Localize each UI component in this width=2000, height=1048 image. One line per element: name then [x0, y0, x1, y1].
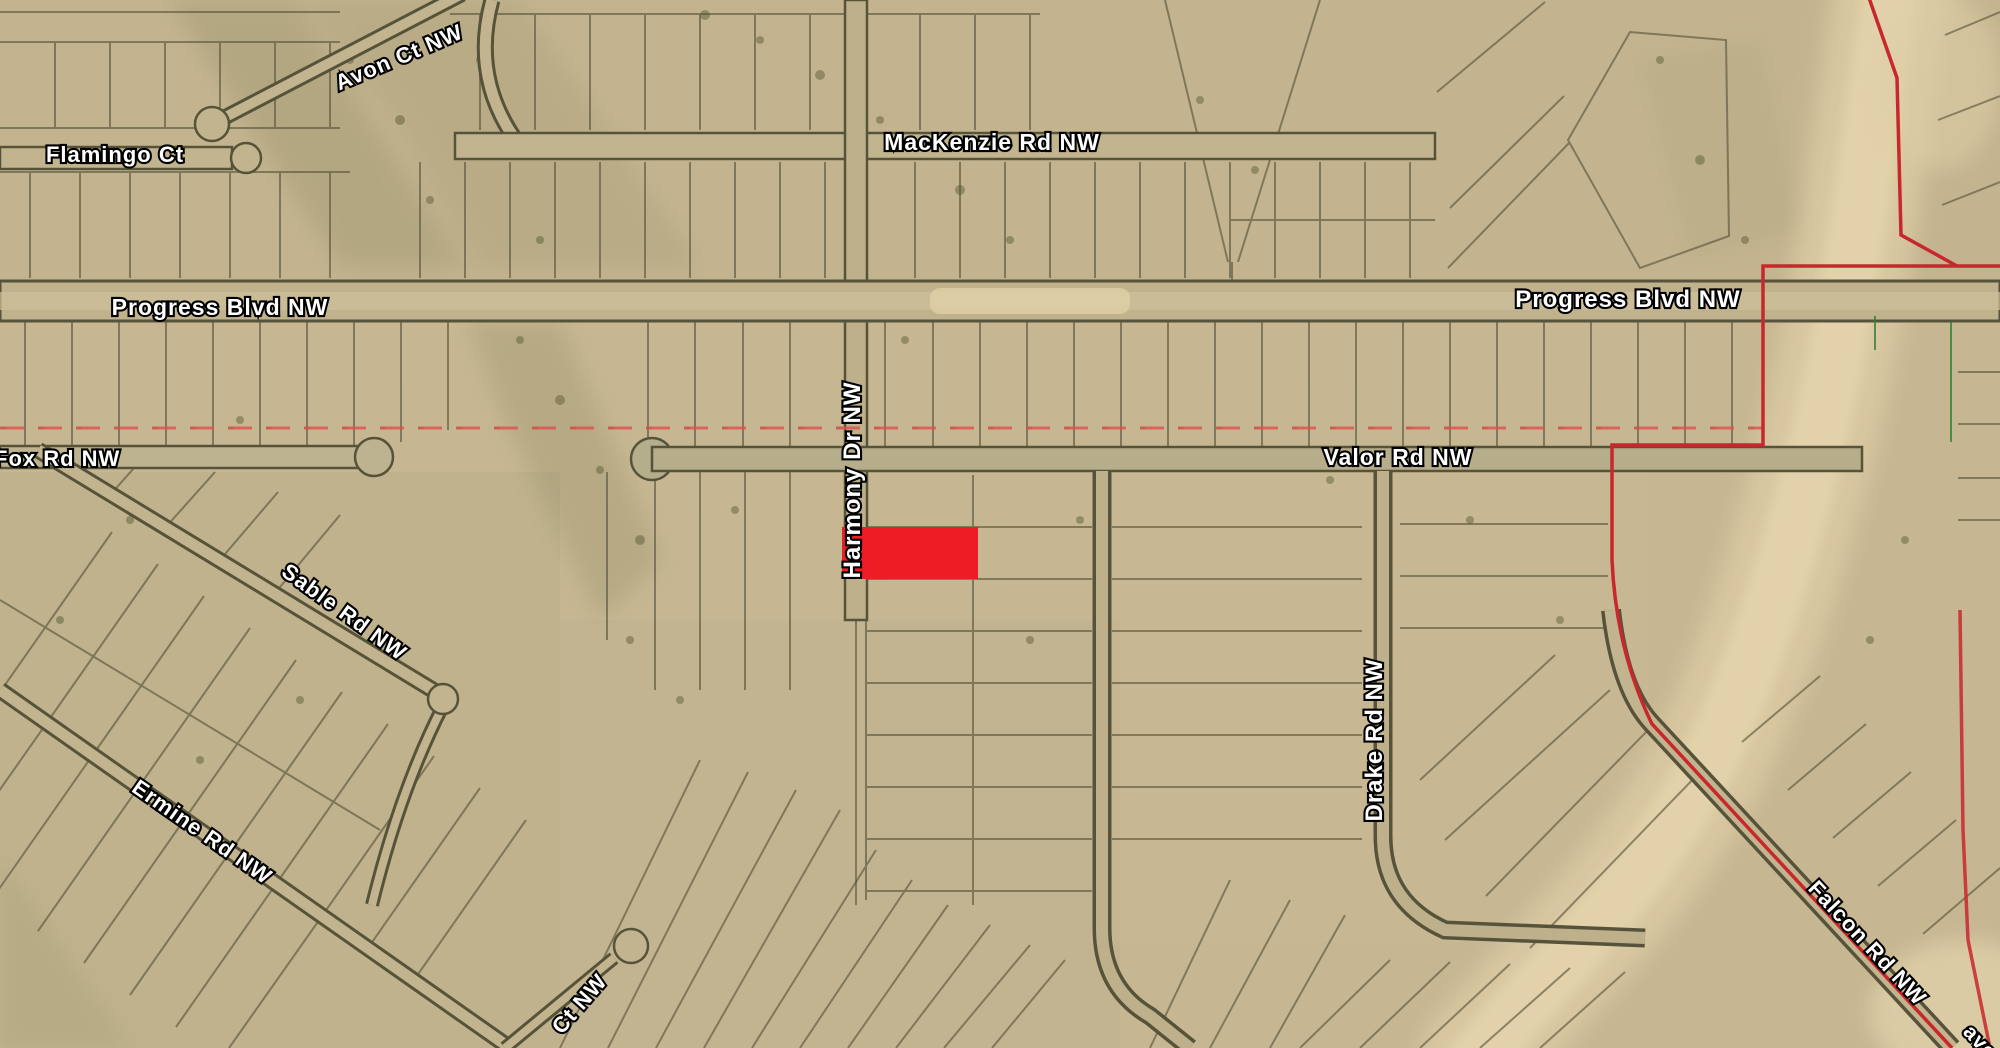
street-label-drake-rd: Drake Rd NW	[1361, 658, 1388, 821]
street-label-valor-rd: Valor Rd NW	[1323, 444, 1472, 470]
street-label-mackenzie-rd: MacKenzie Rd NW	[884, 129, 1100, 155]
map-canvas[interactable]: Flamingo Ct Avon Ct NW MacKenzie Rd NW P…	[0, 0, 2000, 1048]
street-label-progress-blvd-left: Progress Blvd NW	[112, 294, 329, 320]
map-viewport[interactable]: Flamingo Ct Avon Ct NW MacKenzie Rd NW P…	[0, 0, 2000, 1048]
street-label-harmony-dr: Harmony Dr NW	[839, 381, 866, 578]
street-label-progress-blvd-right: Progress Blvd NW	[1515, 286, 1740, 313]
street-label-flamingo-ct: Flamingo Ct	[46, 142, 184, 167]
street-label-fox-rd: Fox Rd NW	[0, 446, 120, 471]
